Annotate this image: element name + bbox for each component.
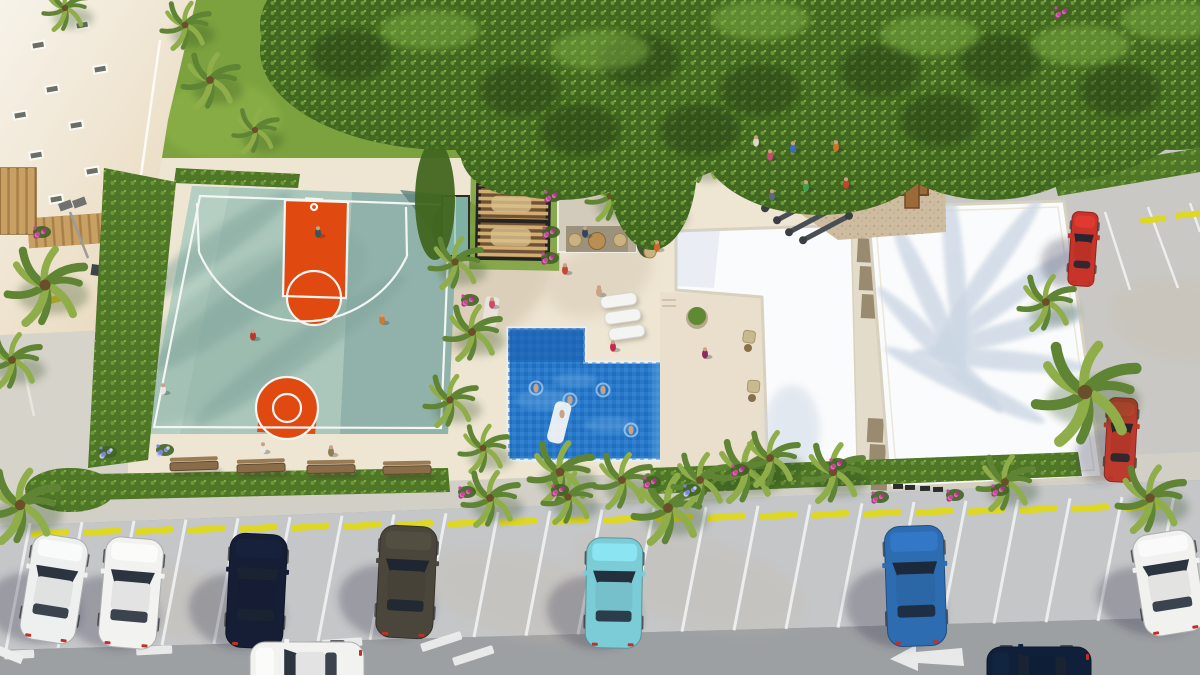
person-head [583,226,587,230]
car-mirror [435,561,439,566]
flower-bloom [461,294,464,297]
kiosk-chair [569,234,582,247]
car-rear-window [325,652,336,675]
scene-canvas [0,0,1200,675]
flower-bloom [874,497,878,501]
person-head [261,442,265,446]
car-mirror [1195,558,1200,564]
flower-bloom [991,484,994,487]
person-head [834,140,838,144]
car-mirror [376,558,380,563]
flower-bloom [1064,8,1067,11]
swimmer-body [628,426,633,435]
patio-wicker-chair [747,380,760,393]
car-taillight [933,640,939,643]
canopy-depth-shadow [660,104,740,156]
car-taillight [104,641,110,645]
white-car-driving [250,639,364,675]
flower-bloom [734,470,738,474]
car-rear-window [237,608,274,621]
flower-bloom [43,228,46,231]
canopy-depth-shadow [900,94,980,146]
car-hood [1074,215,1096,228]
car-taillight [382,632,388,635]
person-head [597,285,601,289]
canopy-highlight [550,30,650,70]
palm-crown [766,454,774,462]
flower-bloom [731,464,734,467]
tall-shrubs [415,140,455,260]
pool-ripple [553,373,597,387]
car-mirror [160,574,164,579]
car-hood [385,530,431,550]
car-taillight [628,643,634,646]
bench-back [307,460,355,465]
gray-suv-parked [372,524,441,639]
canopy-depth-shadow [1080,64,1160,116]
flower-bloom [693,486,696,489]
car-mirror [101,568,105,573]
flower-bloom [949,495,953,499]
person-head [844,177,848,181]
car-taillight [232,642,238,645]
flower-bloom [551,254,554,257]
person-head [703,347,707,351]
bench [383,461,434,480]
flower-bloom [683,484,686,487]
bench-seat [237,463,285,473]
flower-bloom [1054,6,1057,9]
pool-steps [652,364,661,458]
bench [237,458,289,478]
navy-suv-driving [987,644,1091,675]
car-taillight [418,634,424,637]
palm-crown [1078,385,1092,399]
canopy-highlight [710,0,810,40]
flower-bloom [166,446,169,449]
person-head [611,340,615,344]
car-roof [296,652,326,675]
bench-seat [170,461,218,471]
car-taillight [1108,476,1114,479]
potted-plant [688,307,706,325]
car-roof [1029,656,1056,675]
patio-side-table [748,394,756,402]
flower-bloom [643,476,646,479]
palm-crown [1042,298,1050,306]
car-roof [33,576,74,609]
car-rear-window [387,599,424,612]
flower-bloom [33,226,36,229]
car-mirror [1136,424,1140,429]
tree-canopy-leaves [607,80,697,250]
person-head [161,383,165,387]
car-roof [387,570,426,601]
palm-crown [8,356,16,364]
car-mirror [1068,233,1072,238]
palm-crown [480,445,487,452]
car-roof [896,573,936,606]
car-taillight [359,650,362,656]
car-mirror [943,561,947,566]
bench [307,460,358,479]
flower-bloom [109,448,112,451]
blue-sedan-parked [881,525,950,647]
flower-bloom [554,192,557,195]
flower-bloom [829,458,832,461]
car-taillight [1087,281,1093,284]
car-rear-window [1110,453,1130,462]
swimmer-body [559,410,564,419]
bench-seat [307,465,355,474]
flower-bloom [551,484,554,487]
aerial-render-scene [0,0,1200,675]
flower-bloom [1057,12,1061,16]
car-mirror [83,572,88,578]
canopy-highlight [1030,25,1130,65]
flower-bloom [156,444,159,447]
palm-crown [182,22,189,29]
car-rear-window [1056,657,1066,675]
car-rear-window [897,605,935,618]
roof-ac-vent [893,484,903,489]
flower-bloom [159,450,163,454]
flower-bloom [464,300,468,304]
flower-bloom [832,464,836,468]
flower-bloom [561,486,564,489]
flower-bloom [471,296,474,299]
cyan-sedan-parked [582,537,646,648]
walkway-panel [867,418,884,443]
pergola-lounger [491,196,531,213]
white-sedan-parked [94,535,167,650]
canopy-highlight [880,15,980,55]
swimmer-body [567,396,572,405]
flower-bloom [468,488,471,491]
car-taillight [141,644,147,648]
flower-bloom [461,492,465,496]
palm-crown [663,503,673,513]
car-mirror [583,570,587,575]
palm-crown [486,494,494,502]
flower-bloom [102,452,106,456]
palm-crown [696,476,704,484]
car-mirror [1018,644,1023,648]
car-roof [237,579,276,611]
flower-bloom [544,258,548,262]
car-mirror [641,571,645,576]
flower-bloom [646,482,650,486]
flower-bloom [741,466,744,469]
flower-bloom [653,478,656,481]
kiosk-chair [614,234,627,247]
car-mirror [26,563,31,569]
canopy-highlight [380,10,480,50]
person-head [490,297,494,301]
car-roof [595,582,632,611]
palm-crown [62,5,68,11]
car-hood [992,652,1009,675]
flower-bloom [545,232,549,236]
palm-crown [556,468,565,477]
car-rear-window [596,610,632,622]
flower-bloom [946,489,949,492]
car-mirror [1096,235,1100,240]
backboard-top [305,199,323,200]
patio-wicker-chair [742,330,756,344]
car-roof [110,580,151,612]
car-mirror [284,639,289,643]
car-mirror [226,567,230,572]
person-head [791,141,795,145]
balcony-planks [0,168,36,234]
clubhouse-roof-shade [676,229,720,288]
flower-bloom [554,490,558,494]
palm-crown [1145,493,1154,502]
roof-ac-vent [920,486,930,491]
flower-bloom [956,491,959,494]
canopy-depth-shadow [720,64,800,116]
car-taillight [1071,280,1077,283]
bench [170,456,222,476]
bench-seat [383,466,431,475]
roof-ac-vent [905,485,915,490]
flower-bloom [36,232,40,236]
palm-crown [206,76,214,84]
canopy-depth-shadow [480,64,560,116]
swimmer-body [600,386,605,395]
palm-crown [451,258,458,265]
pergola-lounger [491,228,531,247]
person-head [768,149,772,153]
navy-sedan-parked [222,532,291,649]
car-roof [1074,241,1092,261]
flower-bloom [1001,486,1004,489]
canopy-depth-shadow [310,29,390,81]
swimmer-body [533,384,538,393]
person-head [329,445,333,449]
flower-bloom [99,446,102,449]
roof-ac-vent [933,487,943,492]
car-hood [256,648,274,675]
flower-bloom [839,460,842,463]
car-rear-window [1073,260,1090,269]
car-mirror [882,563,886,568]
car-taillight [592,643,598,646]
flower-bloom [544,190,547,193]
palm-crown [15,500,25,510]
flower-bloom [871,491,874,494]
car-taillight [1086,654,1089,660]
car-hood [890,531,938,552]
flower-bloom [542,226,545,229]
person-head [754,135,758,139]
patio-side-table [744,344,752,352]
car-hood [235,539,281,560]
flower-bloom [686,490,690,494]
person-head [563,263,567,267]
person-head [655,240,659,244]
car-taillight [895,642,901,645]
flower-bloom [547,196,551,200]
flower-bloom [458,486,461,489]
palm-crown [252,127,258,133]
flower-bloom [541,252,544,255]
person-head [770,189,774,193]
palm-crown [618,476,626,484]
car-mirror [1132,568,1137,574]
flower-bloom [552,228,555,231]
pool-deep-end [508,328,585,362]
palm-crown [468,328,476,336]
palm-crown [446,396,453,403]
bench-back [383,461,431,466]
person-head [804,180,808,184]
person-head [380,313,384,317]
palm-crown [40,280,51,291]
person-head [316,226,320,230]
flower-bloom [881,493,884,496]
flower-bloom [994,490,998,494]
canopy-depth-shadow [540,104,620,156]
car-mirror [285,570,289,575]
car-hood [592,543,637,561]
person-head [251,329,255,333]
